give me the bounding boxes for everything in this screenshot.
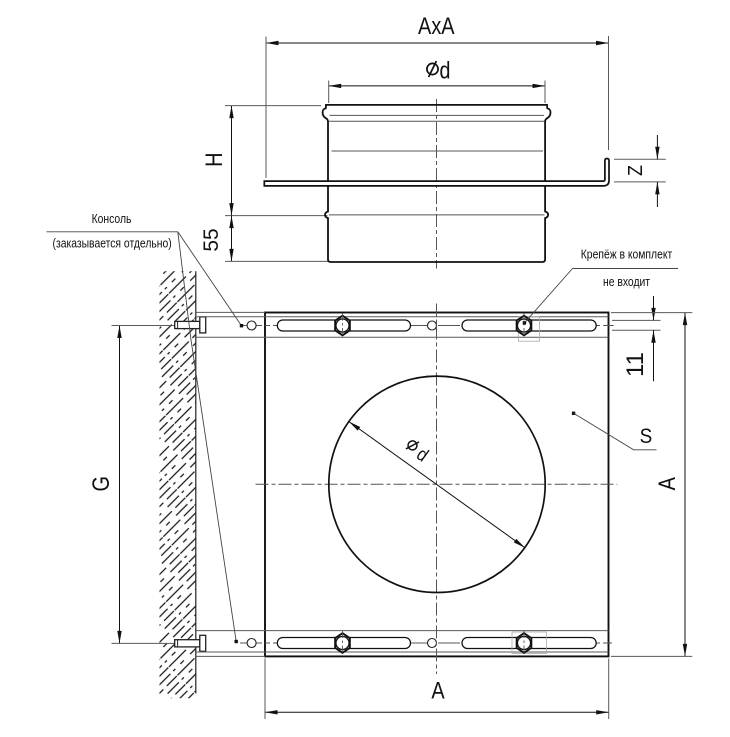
svg-text:H: H xyxy=(200,153,227,167)
svg-text:Консоль: Консоль xyxy=(92,213,132,226)
svg-text:Z: Z xyxy=(625,165,647,176)
svg-text:11: 11 xyxy=(622,352,649,377)
svg-text:Крепёж в комплект: Крепёж в комплект xyxy=(581,249,673,262)
svg-text:A: A xyxy=(653,477,680,491)
svg-text:A: A xyxy=(431,677,445,704)
svg-text:d: d xyxy=(440,56,451,83)
svg-text:S: S xyxy=(640,425,653,448)
svg-text:55: 55 xyxy=(200,228,223,251)
svg-text:не входит: не входит xyxy=(603,276,651,289)
svg-text:G: G xyxy=(87,476,114,491)
svg-text:(заказывается отдельно): (заказывается отдельно) xyxy=(53,238,172,251)
svg-text:AxA: AxA xyxy=(418,12,455,39)
